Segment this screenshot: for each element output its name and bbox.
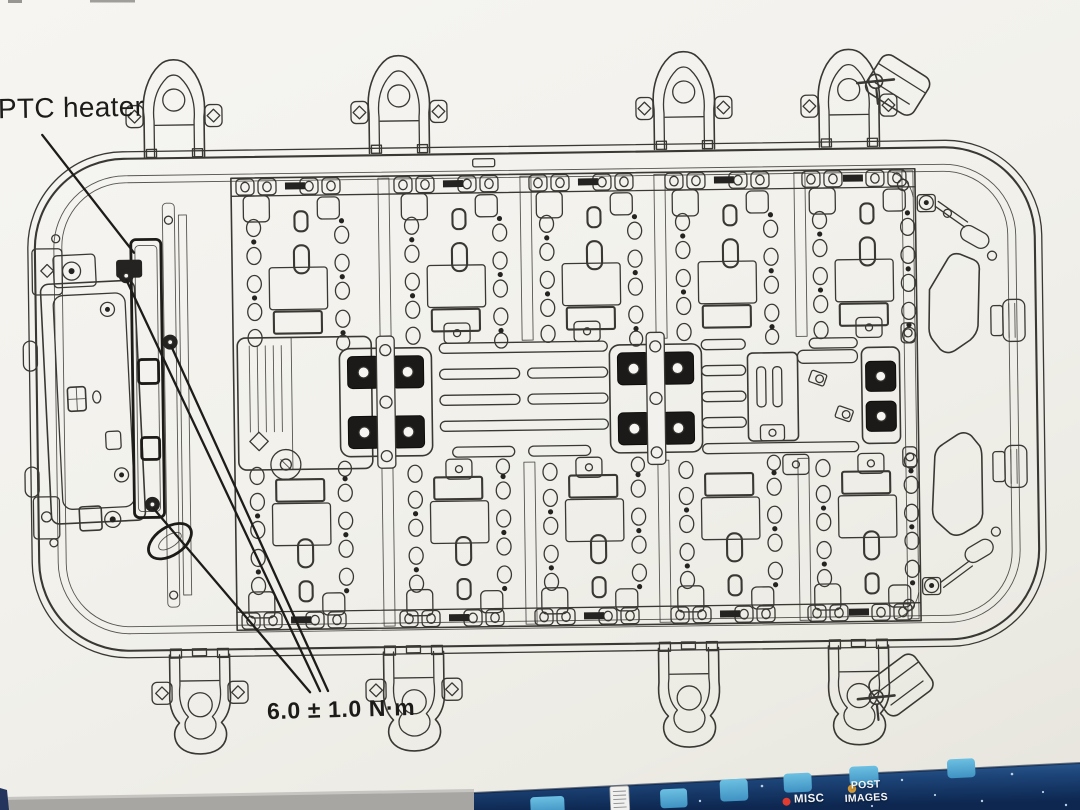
mounting-bracket-top-3 <box>635 51 732 150</box>
module-grid <box>243 187 920 618</box>
photo-edge-mark <box>8 0 22 3</box>
photo-edge-mark <box>90 0 135 3</box>
desktop-folder-label-post-images[interactable]: POST IMAGES <box>833 778 898 806</box>
mounting-bracket-bottom-3 <box>658 642 720 748</box>
screen-bottom-edge <box>0 788 474 810</box>
center-mounting-plate <box>747 350 858 442</box>
pack-drawing <box>19 47 1049 757</box>
desktop-strip <box>474 758 1080 810</box>
photographed-screen: PTC heater 6.0 ± 1.0 N·m MISC POST IMAGE… <box>0 0 1080 810</box>
busbar-block-1 <box>339 336 433 469</box>
torque-spec-label: 6.0 ± 1.0 N·m <box>267 694 416 725</box>
ptc-heater-component <box>116 239 198 567</box>
battery-pack-diagram <box>0 0 1080 810</box>
ptc-heater-label: PTC heater <box>0 91 144 126</box>
busbar-block-2 <box>609 332 703 465</box>
mounting-bracket-bottom-1 <box>151 648 248 754</box>
ptc-bolts <box>119 268 180 513</box>
module-bay-frame <box>231 169 921 631</box>
folder-icon[interactable] <box>783 773 812 793</box>
folder-icon[interactable] <box>719 778 748 801</box>
folder-icon[interactable] <box>530 796 565 810</box>
mounting-bracket-top-2 <box>350 55 447 154</box>
mounting-bracket-bottom-4 <box>828 638 937 745</box>
folder-icon[interactable] <box>947 758 976 778</box>
mounting-bracket-top-4 <box>800 48 934 147</box>
desktop-folder-label-misc[interactable]: MISC <box>794 792 825 805</box>
document-icon[interactable] <box>610 786 630 810</box>
folder-icon[interactable] <box>660 788 688 808</box>
busbar-column-right <box>861 347 900 444</box>
